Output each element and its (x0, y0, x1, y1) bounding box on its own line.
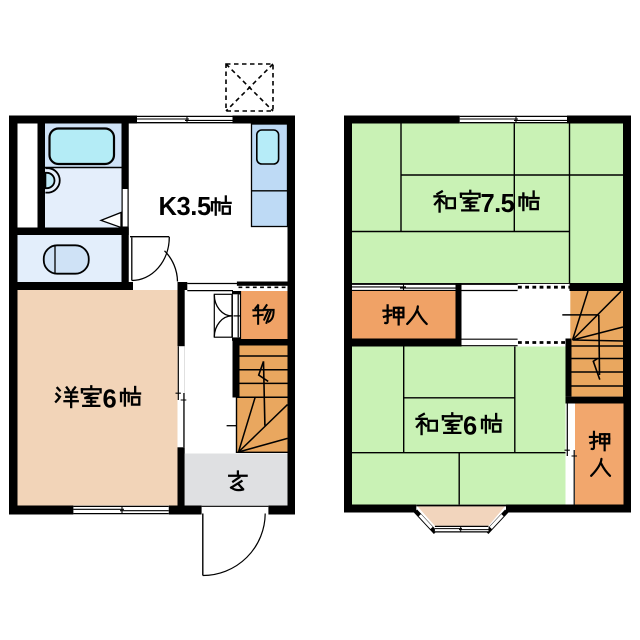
svg-text:6: 6 (463, 413, 477, 441)
svg-text:7.5: 7.5 (481, 190, 515, 218)
svg-text:6: 6 (103, 386, 117, 414)
svg-text:K3.5: K3.5 (159, 193, 211, 221)
